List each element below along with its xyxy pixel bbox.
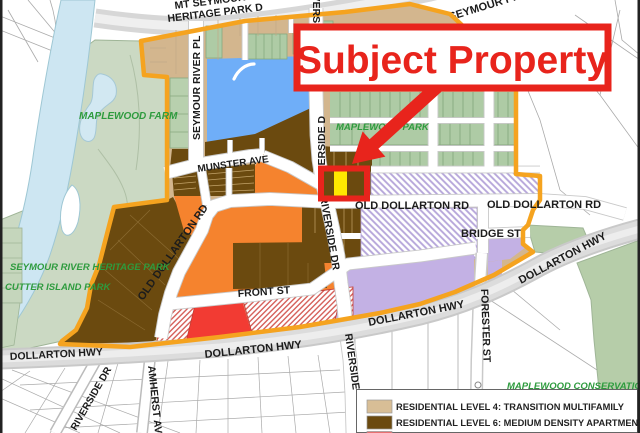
- svg-text:RESIDENTIAL LEVEL 6: MEDIUM DE: RESIDENTIAL LEVEL 6: MEDIUM DENSITY APAR…: [396, 418, 640, 428]
- svg-text:MAPLEWOOD FARM: MAPLEWOOD FARM: [79, 111, 178, 122]
- svg-text:OLD DOLLARTON RD: OLD DOLLARTON RD: [355, 200, 469, 212]
- svg-text:OLD DOLLARTON RD: OLD DOLLARTON RD: [487, 199, 601, 211]
- svg-text:CUTTER ISLAND PARK: CUTTER ISLAND PARK: [5, 282, 112, 293]
- svg-text:SEYMOUR RIVER PL: SEYMOUR RIVER PL: [191, 35, 203, 140]
- svg-text:BRIDGE ST: BRIDGE ST: [461, 228, 521, 240]
- svg-text:RESIDENTIAL LEVEL 4: TRANSITIO: RESIDENTIAL LEVEL 4: TRANSITION MULTIFAM…: [396, 402, 625, 412]
- svg-text:Subject Property: Subject Property: [296, 39, 608, 82]
- svg-text:SEYMOUR RIVER HERITAGE PARK: SEYMOUR RIVER HERITAGE PARK: [10, 262, 171, 273]
